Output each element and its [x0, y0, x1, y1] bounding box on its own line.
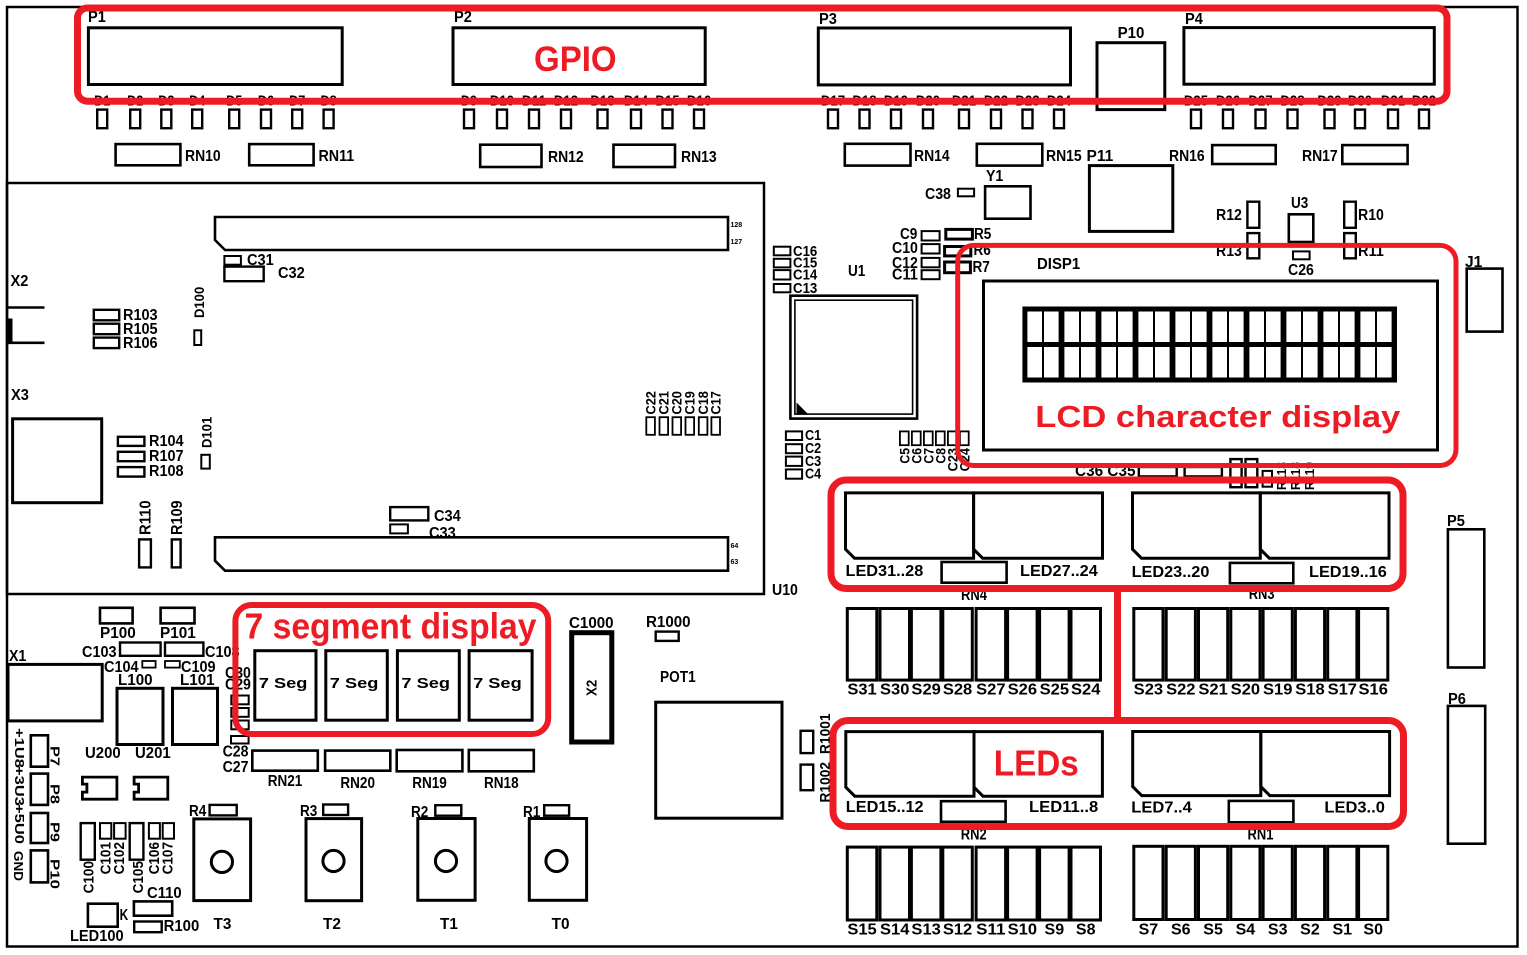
svg-text:S26: S26	[1008, 682, 1038, 699]
svg-text:C34: C34	[434, 508, 461, 525]
svg-text:S15: S15	[847, 922, 877, 939]
svg-text:C38: C38	[925, 186, 951, 203]
svg-text:LED15..12: LED15..12	[846, 799, 924, 816]
svg-text:U200: U200	[85, 745, 121, 762]
svg-text:X2: X2	[585, 680, 601, 696]
svg-text:T1: T1	[440, 916, 458, 933]
svg-text:C1000: C1000	[569, 615, 614, 632]
svg-text:S31: S31	[847, 682, 877, 699]
svg-text:S8: S8	[1076, 922, 1096, 939]
svg-text:S21: S21	[1198, 682, 1228, 699]
svg-text:L101: L101	[180, 672, 215, 689]
svg-text:S4: S4	[1236, 922, 1256, 939]
svg-text:P9: P9	[48, 822, 63, 842]
svg-text:L100: L100	[118, 672, 153, 689]
svg-text:X2: X2	[11, 273, 29, 290]
svg-text:T0: T0	[552, 916, 570, 933]
svg-text:C4: C4	[805, 467, 821, 483]
svg-text:+1U8: +1U8	[12, 728, 27, 768]
svg-text:C107: C107	[161, 842, 177, 874]
svg-text:R109: R109	[169, 500, 186, 535]
svg-text:C102: C102	[112, 842, 128, 874]
svg-text:GND: GND	[11, 851, 26, 881]
svg-text:7 Seg: 7 Seg	[401, 676, 450, 692]
svg-text:S22: S22	[1166, 682, 1195, 699]
svg-text:LED7..4: LED7..4	[1131, 800, 1192, 817]
svg-text:RN17: RN17	[1302, 148, 1338, 165]
svg-text:7 Seg: 7 Seg	[473, 676, 522, 692]
svg-text:S3: S3	[1268, 922, 1288, 939]
svg-text:S7: S7	[1139, 922, 1159, 939]
svg-text:R108: R108	[149, 463, 184, 480]
svg-text:P7: P7	[48, 746, 63, 766]
svg-text:U10: U10	[772, 582, 798, 599]
svg-text:P8: P8	[48, 784, 63, 804]
svg-text:S24: S24	[1071, 682, 1101, 699]
svg-text:C105: C105	[131, 861, 147, 893]
svg-text:R10: R10	[1358, 207, 1384, 224]
svg-text:P3: P3	[819, 11, 837, 28]
svg-text:Y1: Y1	[986, 168, 1004, 185]
svg-text:R12: R12	[1216, 207, 1242, 224]
svg-text:POT1: POT1	[660, 669, 696, 686]
svg-text:S20: S20	[1231, 682, 1260, 699]
svg-text:LED11..8: LED11..8	[1029, 799, 1099, 816]
svg-text:128: 128	[731, 222, 743, 229]
svg-text:LED23..20: LED23..20	[1132, 564, 1210, 581]
svg-text:RN14: RN14	[914, 148, 950, 165]
svg-text:LCD character display: LCD character display	[1035, 399, 1401, 434]
svg-text:P11: P11	[1087, 148, 1114, 165]
svg-text:P4: P4	[1185, 11, 1203, 28]
svg-text:C26: C26	[1288, 262, 1314, 279]
svg-text:RN10: RN10	[185, 148, 221, 165]
svg-text:C11: C11	[892, 267, 918, 284]
svg-text:+3U3: +3U3	[12, 766, 27, 806]
svg-text:C28: C28	[223, 744, 249, 761]
svg-text:C100: C100	[82, 861, 98, 893]
svg-text:P100: P100	[100, 625, 136, 642]
svg-text:P10: P10	[48, 859, 63, 889]
svg-text:S25: S25	[1040, 682, 1070, 699]
svg-text:7 Seg: 7 Seg	[330, 676, 379, 692]
svg-text:RN16: RN16	[1169, 148, 1205, 165]
svg-text:+5U0: +5U0	[12, 804, 27, 844]
svg-text:S19: S19	[1263, 682, 1293, 699]
svg-text:LED31..28: LED31..28	[846, 563, 924, 580]
svg-text:S5: S5	[1203, 922, 1223, 939]
svg-text:R1000: R1000	[646, 614, 691, 631]
svg-text:S14: S14	[880, 922, 910, 939]
svg-text:GPIO: GPIO	[534, 40, 617, 79]
svg-text:63: 63	[731, 559, 739, 566]
svg-text:X1: X1	[9, 648, 27, 665]
svg-text:RN13: RN13	[681, 149, 717, 166]
svg-text:P2: P2	[454, 9, 472, 26]
svg-text:S9: S9	[1045, 922, 1065, 939]
svg-text:S16: S16	[1359, 682, 1389, 699]
svg-text:C33: C33	[429, 525, 456, 542]
svg-text:D101: D101	[199, 417, 215, 448]
svg-text:S0: S0	[1363, 922, 1383, 939]
svg-text:S17: S17	[1328, 682, 1357, 699]
svg-text:LED27..24: LED27..24	[1020, 563, 1098, 580]
svg-text:RN19: RN19	[412, 775, 447, 792]
svg-text:S27: S27	[976, 682, 1005, 699]
svg-text:C17: C17	[708, 391, 724, 415]
svg-text:S13: S13	[911, 922, 941, 939]
svg-text:S10: S10	[1008, 922, 1037, 939]
svg-text:X3: X3	[11, 387, 29, 404]
svg-text:C27: C27	[223, 759, 249, 776]
svg-text:64: 64	[731, 543, 739, 550]
svg-text:127: 127	[731, 239, 743, 246]
svg-text:S1: S1	[1333, 922, 1353, 939]
svg-text:S28: S28	[943, 682, 973, 699]
svg-text:RN15: RN15	[1046, 148, 1082, 165]
svg-text:R106: R106	[123, 335, 158, 352]
svg-text:P5: P5	[1447, 513, 1465, 530]
svg-text:C32: C32	[278, 265, 305, 282]
svg-text:S2: S2	[1300, 922, 1320, 939]
svg-text:RN21: RN21	[268, 773, 303, 790]
svg-text:R110: R110	[138, 500, 155, 535]
svg-text:T2: T2	[323, 916, 341, 933]
svg-text:D100: D100	[191, 287, 207, 318]
svg-text:U1: U1	[848, 263, 866, 280]
svg-text:R7: R7	[973, 259, 990, 276]
svg-text:P101: P101	[160, 625, 196, 642]
svg-text:S30: S30	[880, 682, 909, 699]
svg-text:S11: S11	[976, 922, 1006, 939]
svg-text:7 segment display: 7 segment display	[245, 606, 537, 647]
svg-text:U3: U3	[1291, 195, 1309, 212]
svg-text:RN12: RN12	[548, 149, 584, 166]
svg-text:S18: S18	[1295, 682, 1325, 699]
svg-text:LED100: LED100	[70, 928, 124, 945]
svg-text:LEDs: LEDs	[994, 743, 1079, 784]
svg-text:U201: U201	[135, 745, 171, 762]
svg-text:R5: R5	[974, 226, 992, 243]
svg-text:C110: C110	[147, 885, 182, 902]
svg-text:P1: P1	[88, 9, 106, 26]
svg-text:S12: S12	[943, 922, 972, 939]
svg-text:R100: R100	[164, 918, 200, 935]
svg-text:7 Seg: 7 Seg	[259, 676, 308, 692]
svg-text:K: K	[120, 907, 129, 924]
svg-text:DISP1: DISP1	[1037, 256, 1081, 273]
svg-text:P10: P10	[1118, 25, 1145, 42]
svg-text:RN18: RN18	[484, 775, 519, 792]
svg-text:S6: S6	[1171, 922, 1191, 939]
svg-text:T3: T3	[214, 916, 232, 933]
svg-text:LED19..16: LED19..16	[1309, 564, 1387, 581]
svg-text:RN20: RN20	[340, 775, 375, 792]
svg-text:RN11: RN11	[319, 148, 355, 165]
svg-text:LED3..0: LED3..0	[1324, 800, 1385, 817]
svg-text:S23: S23	[1134, 682, 1164, 699]
svg-text:S29: S29	[911, 682, 941, 699]
